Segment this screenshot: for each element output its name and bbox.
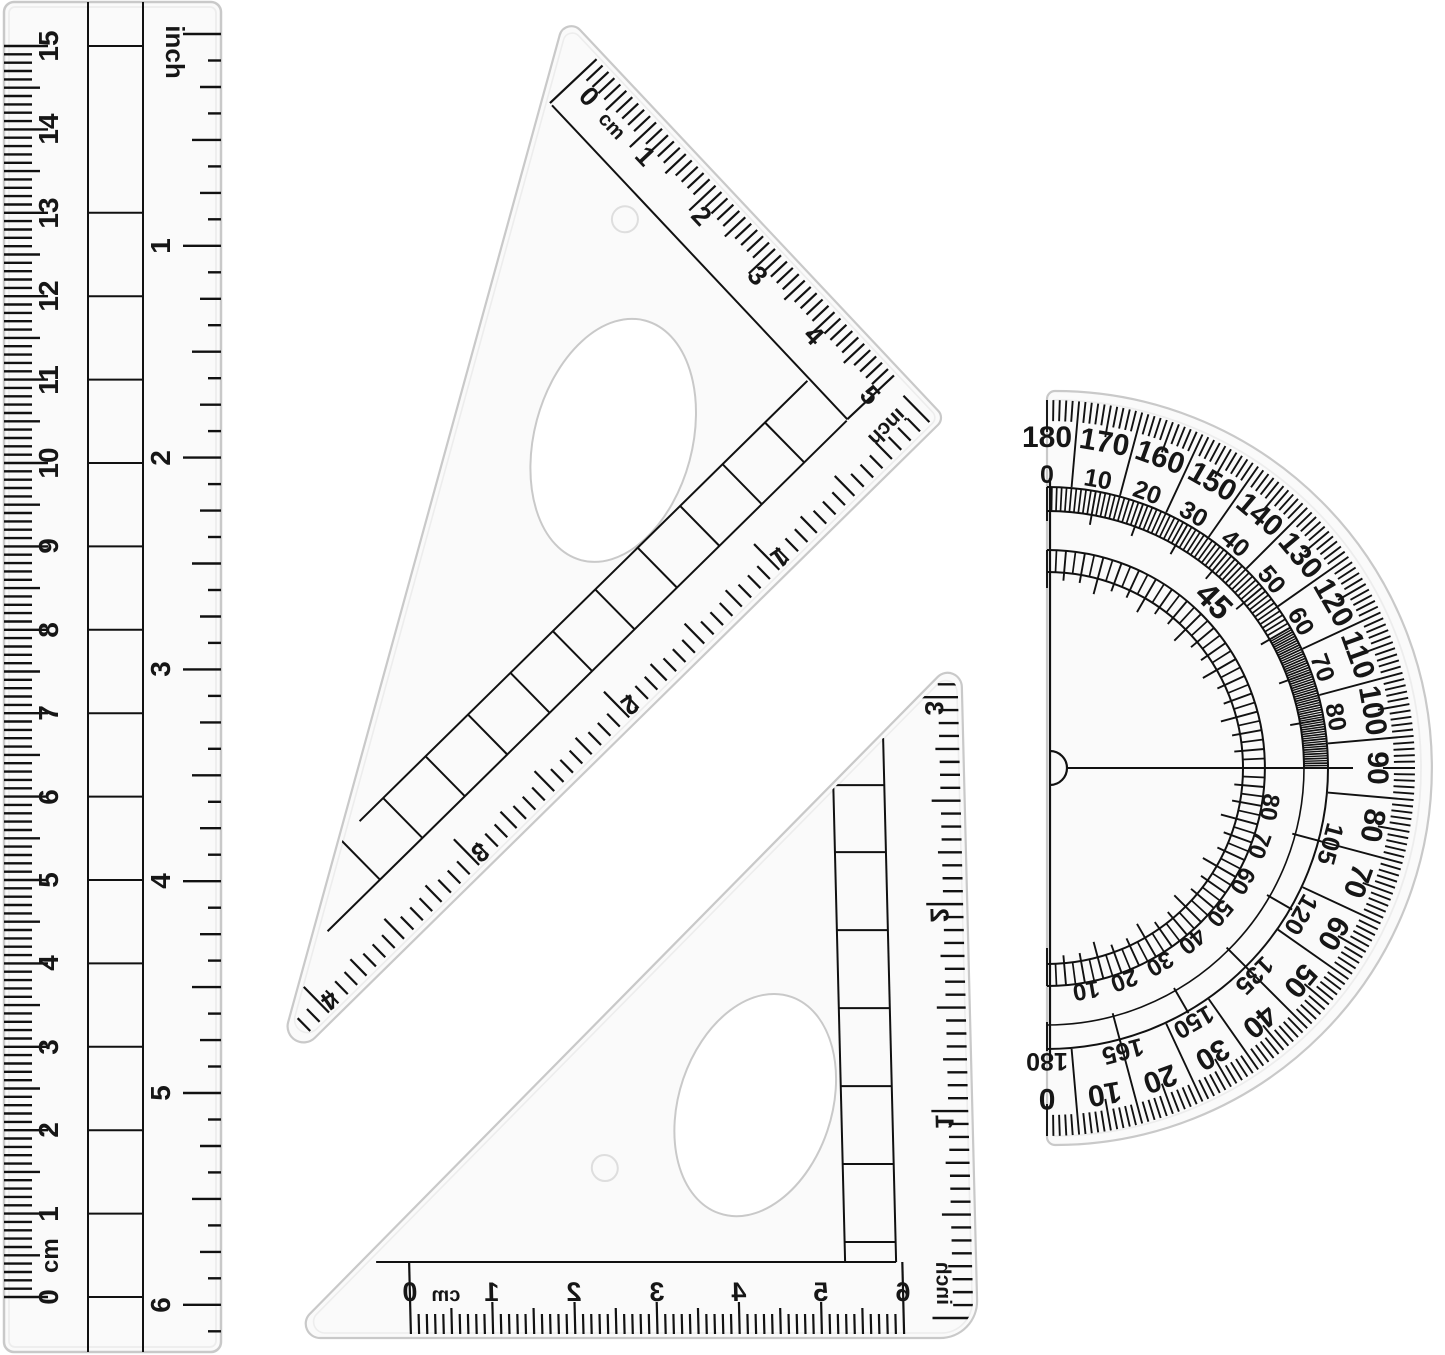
svg-text:0: 0 [33, 1289, 64, 1305]
svg-text:1: 1 [484, 1277, 500, 1307]
svg-text:10: 10 [1082, 463, 1114, 495]
svg-text:10: 10 [33, 447, 64, 478]
svg-text:10: 10 [1071, 974, 1102, 1005]
svg-text:13: 13 [33, 197, 64, 228]
svg-text:inch: inch [160, 25, 190, 78]
svg-text:inch: inch [931, 1262, 955, 1305]
svg-text:80: 80 [1353, 806, 1391, 845]
svg-text:2: 2 [145, 450, 176, 466]
svg-text:3: 3 [145, 661, 176, 677]
svg-text:0: 0 [1040, 461, 1054, 489]
svg-text:5: 5 [813, 1277, 829, 1307]
svg-text:6: 6 [895, 1277, 911, 1307]
svg-text:2: 2 [924, 908, 954, 922]
svg-text:180: 180 [1026, 1047, 1068, 1075]
svg-text:15: 15 [33, 30, 64, 61]
svg-text:cm: cm [431, 1284, 460, 1306]
svg-text:4: 4 [33, 955, 64, 971]
svg-text:4: 4 [145, 873, 176, 889]
svg-text:5: 5 [33, 872, 64, 888]
svg-text:3: 3 [649, 1277, 665, 1307]
svg-text:8: 8 [33, 622, 64, 638]
svg-text:14: 14 [33, 113, 64, 145]
svg-text:1: 1 [145, 238, 176, 254]
svg-text:6: 6 [33, 789, 64, 805]
svg-text:11: 11 [33, 365, 64, 395]
svg-text:2: 2 [33, 1122, 64, 1138]
svg-text:12: 12 [33, 280, 64, 311]
svg-text:80: 80 [1319, 701, 1351, 733]
svg-text:3: 3 [919, 701, 949, 715]
svg-text:0: 0 [1039, 1082, 1056, 1115]
svg-text:90: 90 [1361, 751, 1394, 784]
svg-text:180: 180 [1022, 421, 1072, 454]
svg-text:cm: cm [37, 1238, 64, 1273]
svg-text:4: 4 [731, 1277, 747, 1307]
svg-text:10: 10 [1085, 1074, 1124, 1112]
svg-text:1: 1 [33, 1206, 64, 1222]
svg-text:9: 9 [33, 538, 64, 554]
svg-text:3: 3 [33, 1039, 64, 1055]
svg-text:5: 5 [145, 1085, 176, 1101]
svg-text:0: 0 [402, 1277, 418, 1307]
svg-text:7: 7 [33, 705, 64, 721]
svg-text:80: 80 [1253, 792, 1284, 823]
svg-text:6: 6 [145, 1297, 176, 1313]
svg-text:1: 1 [929, 1115, 959, 1129]
svg-text:2: 2 [566, 1277, 582, 1307]
